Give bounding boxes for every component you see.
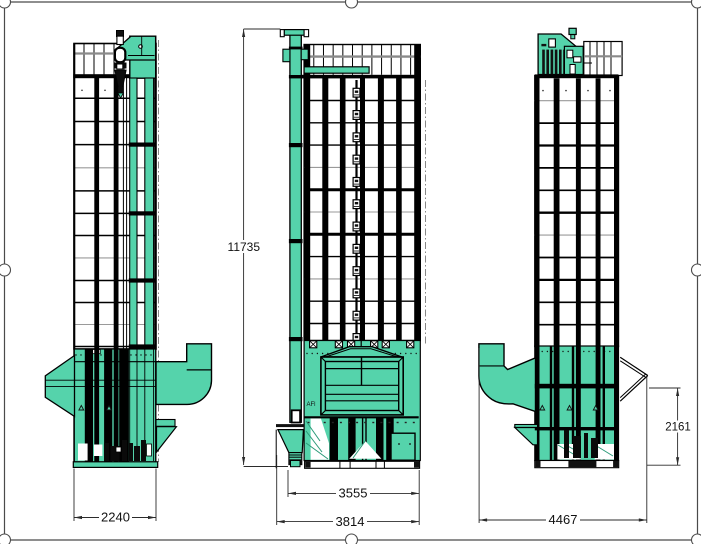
svg-text:3555: 3555 <box>339 486 368 501</box>
svg-text:11735: 11735 <box>228 240 261 254</box>
svg-text:2240: 2240 <box>101 510 130 525</box>
svg-text:2161: 2161 <box>665 422 691 434</box>
svg-text:3814: 3814 <box>336 514 365 529</box>
svg-text:4467: 4467 <box>549 512 578 527</box>
svg-text:AFl: AFl <box>307 402 316 408</box>
